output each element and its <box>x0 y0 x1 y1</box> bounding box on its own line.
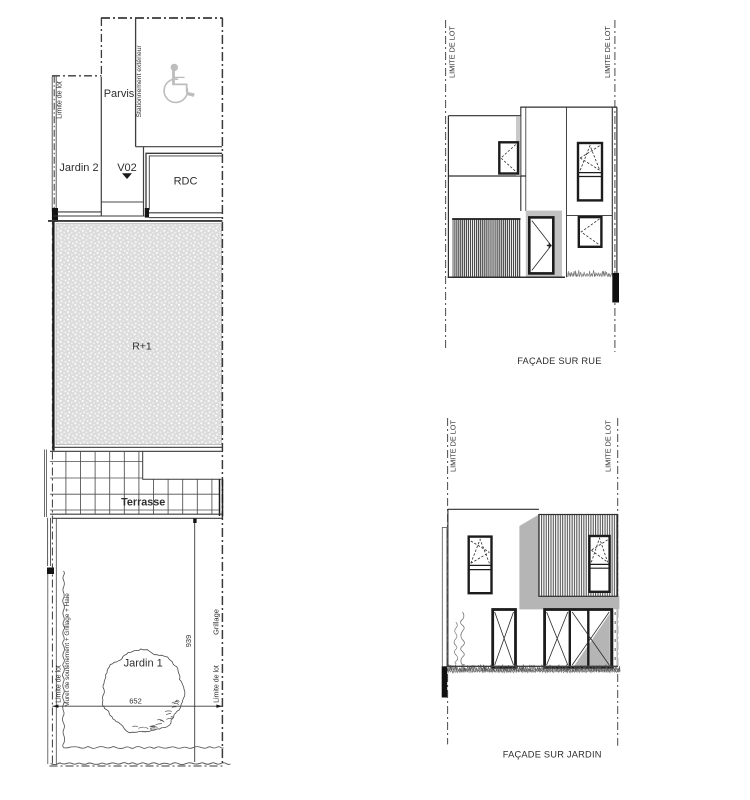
svg-text:Jardin 2: Jardin 2 <box>59 162 98 174</box>
svg-text:Grillage: Grillage <box>212 609 221 635</box>
svg-text:Muret de soutènement + Grillag: Muret de soutènement + Grillage + Haie <box>64 593 71 707</box>
svg-text:Parvis: Parvis <box>104 88 135 100</box>
svg-text:RDC: RDC <box>174 176 198 188</box>
svg-text:Jardin 1: Jardin 1 <box>124 658 163 670</box>
svg-text:Terrasse: Terrasse <box>121 496 165 508</box>
svg-text:FAÇADE SUR RUE: FAÇADE SUR RUE <box>517 356 601 366</box>
svg-text:652: 652 <box>129 697 142 706</box>
svg-text:Stationnement extérieur: Stationnement extérieur <box>136 45 143 118</box>
svg-text:FAÇADE SUR JARDIN: FAÇADE SUR JARDIN <box>503 750 602 760</box>
svg-text:Limite de lot: Limite de lot <box>214 665 221 703</box>
svg-text:LIMITE DE LOT: LIMITE DE LOT <box>604 420 613 472</box>
svg-text:R+1: R+1 <box>132 341 152 353</box>
svg-text:V02: V02 <box>117 162 137 174</box>
svg-text:LIMITE DE LOT: LIMITE DE LOT <box>448 26 457 78</box>
svg-text:LIMITE DE LOT: LIMITE DE LOT <box>603 26 612 78</box>
svg-text:939: 939 <box>184 635 193 648</box>
svg-text:LIMITE DE LOT: LIMITE DE LOT <box>449 420 458 472</box>
svg-text:Limite de lot: Limite de lot <box>56 665 63 703</box>
svg-text:Limite de lot: Limite de lot <box>57 81 64 119</box>
